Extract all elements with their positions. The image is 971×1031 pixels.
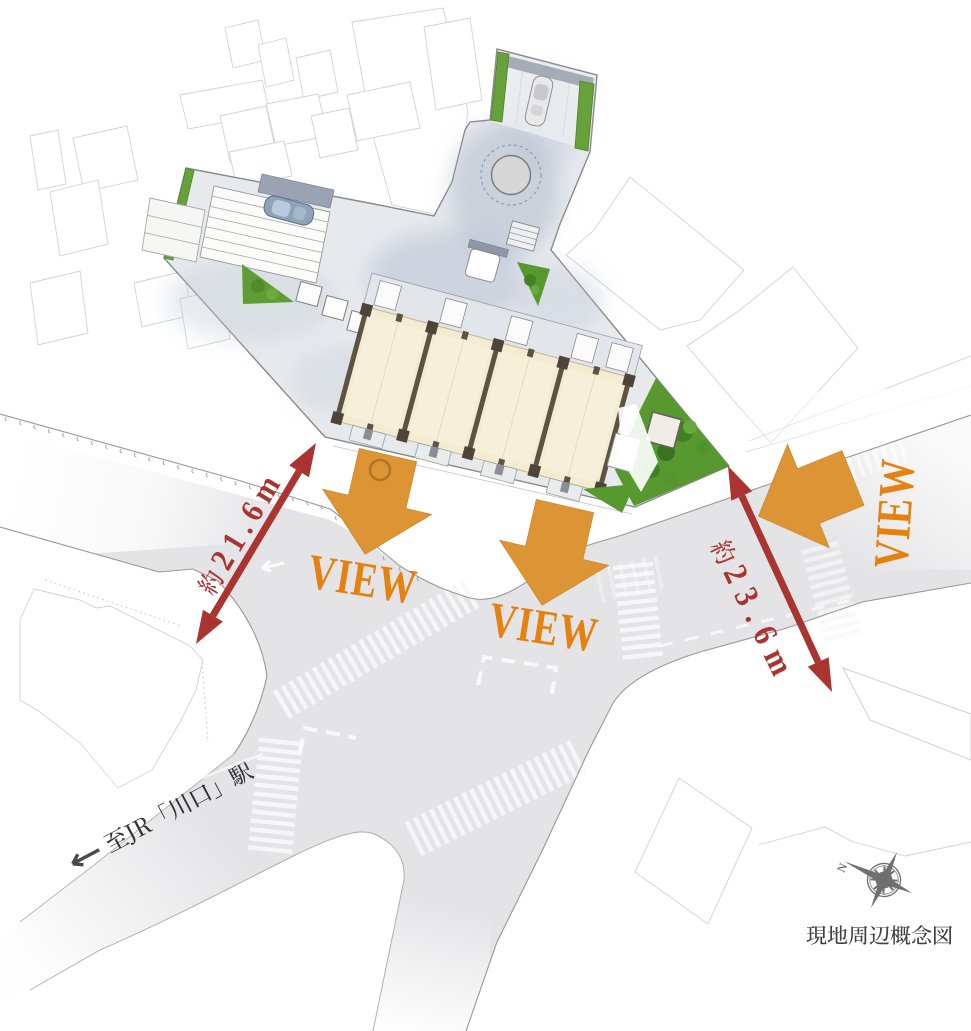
svg-text:VIEW: VIEW xyxy=(863,457,925,570)
